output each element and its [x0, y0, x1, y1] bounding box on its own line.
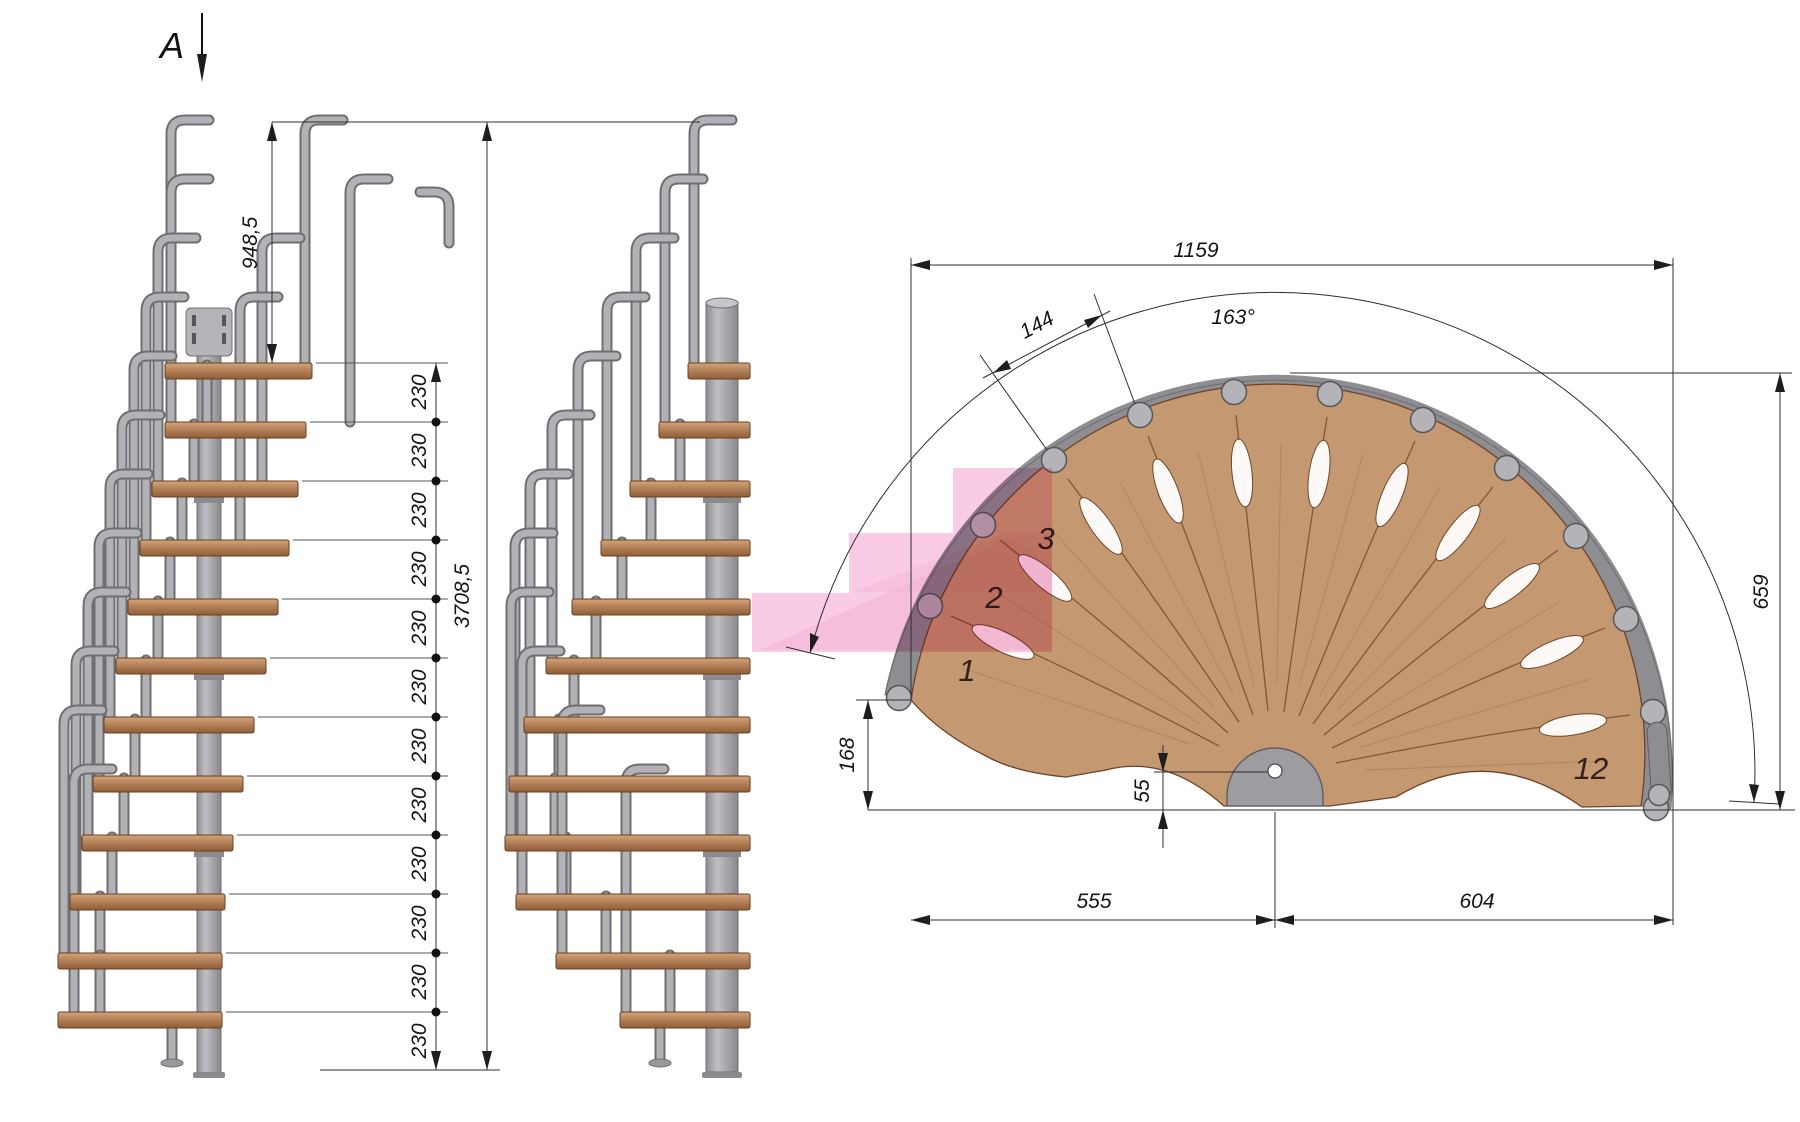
step-number-12: 12 [1574, 751, 1608, 786]
section-highlight-overlay [752, 468, 1052, 652]
section-label: A [158, 25, 184, 66]
svg-text:230: 230 [408, 905, 431, 941]
svg-text:144: 144 [1016, 307, 1058, 344]
svg-text:555: 555 [1076, 890, 1111, 913]
section-arrow-icon [197, 13, 207, 82]
step-number-1: 1 [958, 653, 975, 688]
svg-text:168: 168 [836, 737, 859, 772]
svg-text:230: 230 [408, 374, 431, 410]
svg-text:230: 230 [408, 433, 431, 469]
dim-total-height: 3708,5 [451, 122, 492, 1070]
dim-spans: 555 604 [911, 812, 1673, 928]
handrail-posts [64, 120, 209, 1012]
svg-text:604: 604 [1459, 890, 1494, 913]
svg-text:163°: 163° [1211, 306, 1254, 329]
svg-text:230: 230 [408, 610, 431, 646]
svg-text:948,5: 948,5 [239, 216, 262, 269]
wall-bracket [186, 308, 232, 356]
svg-text:230: 230 [408, 551, 431, 587]
svg-text:1159: 1159 [1173, 239, 1218, 262]
svg-text:659: 659 [1750, 574, 1773, 609]
svg-text:55: 55 [1131, 779, 1154, 803]
svg-text:230: 230 [408, 1023, 431, 1059]
handrail-stub [420, 192, 449, 243]
svg-text:230: 230 [408, 492, 431, 528]
dim-tip-offset: 168 [836, 700, 911, 810]
drawing-page: 1 2 3 12 948,5 [0, 0, 1800, 1122]
svg-text:230: 230 [408, 964, 431, 1000]
side-elevation-view [505, 120, 750, 1078]
section-view-label: A [158, 13, 207, 82]
svg-text:230: 230 [408, 787, 431, 823]
svg-text:3708,5: 3708,5 [451, 564, 474, 629]
svg-text:230: 230 [408, 728, 431, 764]
svg-text:230: 230 [408, 669, 431, 705]
svg-text:230: 230 [408, 846, 431, 882]
staircase-technical-drawing: 1 2 3 12 948,5 [0, 0, 1800, 1122]
